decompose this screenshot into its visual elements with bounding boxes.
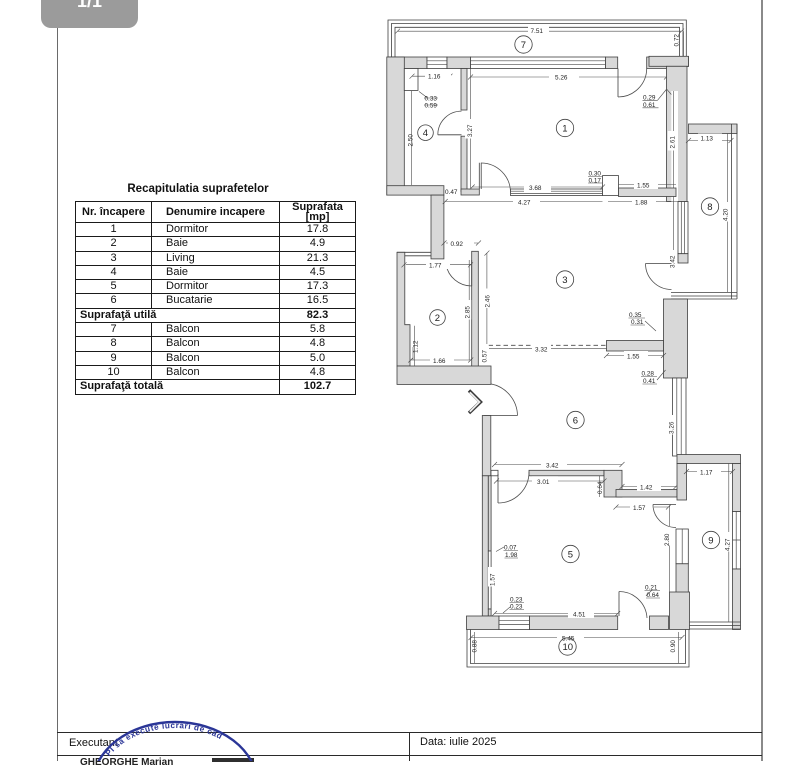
svg-text:1.77: 1.77 (429, 262, 442, 269)
svg-text:3.27: 3.27 (467, 124, 474, 137)
svg-text:3.01: 3.01 (537, 479, 550, 486)
svg-text:0.72: 0.72 (673, 34, 680, 47)
svg-text:3: 3 (562, 275, 567, 286)
svg-text:1.12: 1.12 (412, 340, 419, 353)
svg-text:0.59: 0.59 (425, 103, 438, 110)
svg-text:1.57: 1.57 (633, 505, 646, 512)
svg-text:3.42: 3.42 (669, 255, 676, 268)
svg-text:0.88: 0.88 (472, 640, 479, 653)
svg-text:4.51: 4.51 (573, 611, 586, 618)
svg-text:3.26: 3.26 (669, 421, 676, 434)
svg-text:1.66: 1.66 (433, 358, 446, 365)
svg-text:0.47: 0.47 (445, 189, 458, 196)
svg-text:0.64: 0.64 (597, 481, 604, 494)
svg-text:1.55: 1.55 (627, 353, 640, 360)
svg-text:1.88: 1.88 (635, 200, 648, 207)
svg-text:1.55: 1.55 (637, 182, 650, 189)
svg-text:4.20: 4.20 (722, 208, 729, 221)
svg-text:3.42: 3.42 (546, 462, 559, 469)
svg-text:2: 2 (435, 313, 440, 324)
svg-text:4.27: 4.27 (725, 538, 732, 551)
svg-text:3.68: 3.68 (529, 185, 542, 192)
svg-text:4.27: 4.27 (518, 200, 531, 207)
svg-text:5.26: 5.26 (555, 75, 568, 82)
svg-text:9: 9 (708, 536, 713, 547)
svg-text:7.51: 7.51 (531, 28, 544, 35)
svg-text:1: 1 (562, 124, 567, 135)
svg-text:1.57: 1.57 (490, 573, 497, 586)
svg-text:2.50: 2.50 (407, 134, 414, 147)
svg-text:7: 7 (521, 40, 526, 51)
svg-text:2.61: 2.61 (669, 136, 676, 149)
svg-text:3.32: 3.32 (535, 346, 548, 353)
svg-text:2.46: 2.46 (485, 295, 492, 308)
svg-text:1.13: 1.13 (701, 136, 714, 143)
svg-text:0.92: 0.92 (451, 241, 464, 248)
svg-text:0.90: 0.90 (670, 640, 677, 653)
svg-text:1.42: 1.42 (640, 484, 653, 491)
svg-text:10: 10 (563, 642, 574, 653)
svg-text:1.17: 1.17 (700, 469, 713, 476)
svg-text:0.33: 0.33 (425, 96, 438, 103)
svg-text:5: 5 (568, 550, 573, 561)
svg-text:8: 8 (707, 202, 712, 213)
svg-text:2.80: 2.80 (664, 533, 671, 546)
svg-text:2.85: 2.85 (464, 306, 471, 319)
svg-text:6: 6 (573, 416, 578, 427)
svg-text:4: 4 (423, 128, 428, 139)
svg-text:0.57: 0.57 (481, 350, 488, 363)
svg-text:1.16: 1.16 (428, 74, 441, 81)
